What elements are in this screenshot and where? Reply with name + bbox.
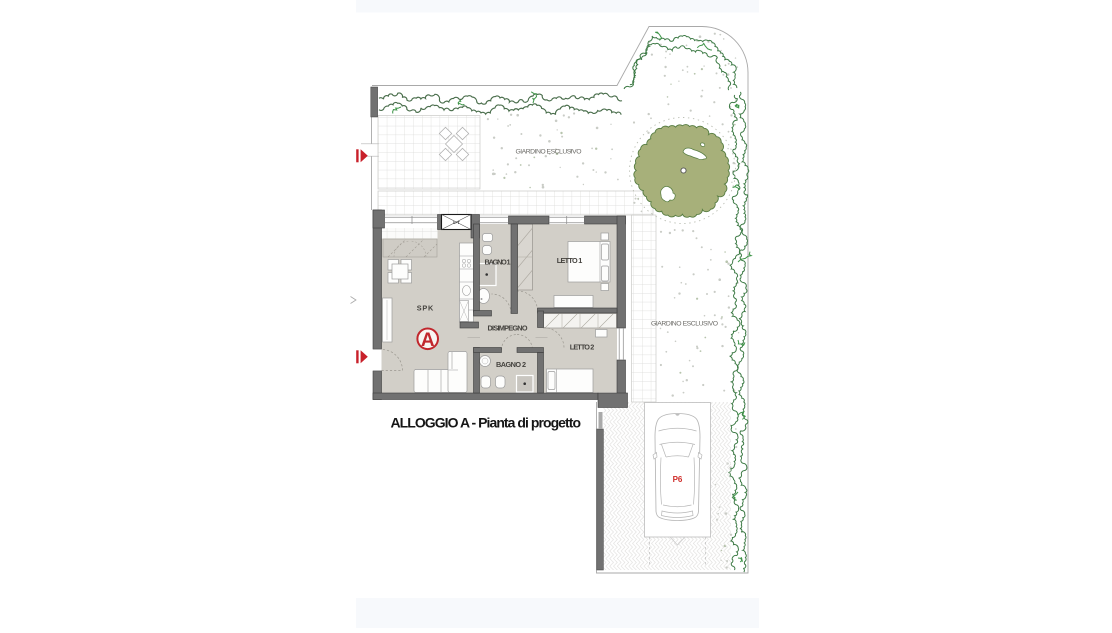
svg-text:LETTO 1: LETTO 1 bbox=[557, 256, 583, 265]
svg-text:DISIMPEGNO: DISIMPEGNO bbox=[488, 324, 528, 333]
svg-text:GIARDINO ESCLUSIVO: GIARDINO ESCLUSIVO bbox=[516, 149, 582, 156]
svg-text:L-T: L-T bbox=[453, 220, 460, 225]
svg-text:LETTO 2: LETTO 2 bbox=[570, 343, 595, 352]
svg-text:GIARDINO ESCLUSIVO: GIARDINO ESCLUSIVO bbox=[651, 321, 718, 328]
svg-text:ALLOGGIO A - Pianta di progett: ALLOGGIO A - Pianta di progetto bbox=[391, 415, 582, 431]
svg-text:A: A bbox=[421, 330, 435, 351]
svg-text:BAGNO 1: BAGNO 1 bbox=[485, 258, 511, 267]
svg-text:SPK: SPK bbox=[417, 304, 434, 313]
svg-text:BAGNO 2: BAGNO 2 bbox=[496, 360, 526, 369]
svg-text:P6: P6 bbox=[673, 475, 683, 484]
